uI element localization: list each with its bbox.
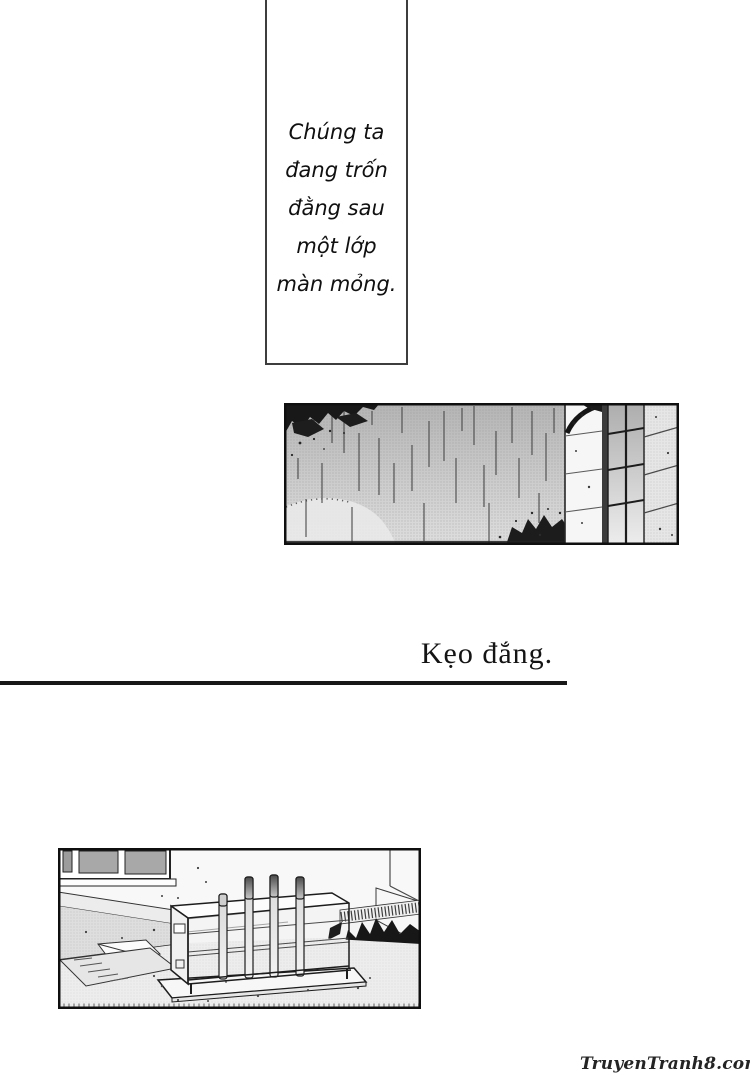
chapter-title: Kẹo đắng.	[412, 637, 562, 671]
narration-line: đằng sau	[267, 189, 406, 227]
yard-panel-artwork	[58, 848, 421, 1009]
yard-panel-drawing	[58, 848, 421, 1009]
rain-panel-drawing	[284, 403, 679, 545]
site-watermark: TruyenTranh8.com	[580, 1054, 744, 1074]
narration-line: Chúng ta	[267, 113, 406, 151]
narration-line: màn mỏng.	[267, 265, 406, 303]
title-underline	[0, 681, 567, 685]
narration-line: một lớp	[267, 227, 406, 265]
narration-box: Chúng ta đang trốn đằng sau một lớp màn …	[265, 0, 408, 365]
narration-text: Chúng ta đang trốn đằng sau một lớp màn …	[267, 113, 406, 303]
rain-panel-artwork	[284, 403, 679, 545]
narration-line: đang trốn	[267, 151, 406, 189]
